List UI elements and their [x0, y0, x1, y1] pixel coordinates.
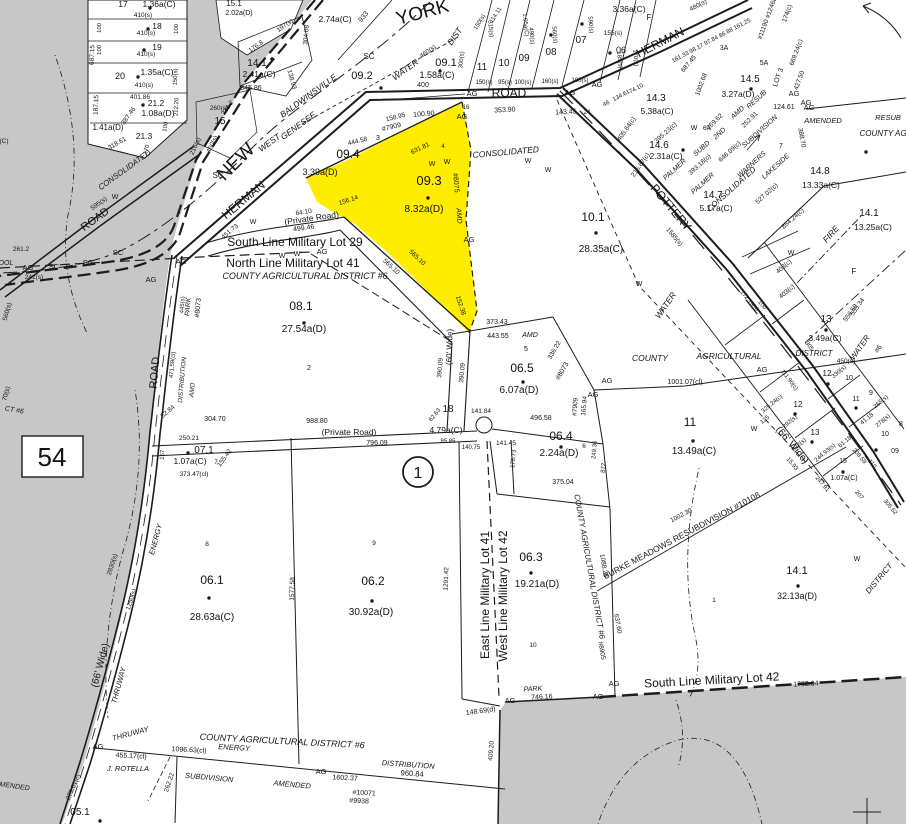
map-label: 250.21	[179, 435, 199, 442]
map-label: AG	[317, 247, 328, 256]
map-label: 7	[214, 459, 218, 466]
map-label: 401.86	[130, 94, 150, 101]
map-label: THRUWAY	[111, 724, 150, 743]
map-label: COUNTY AGRICULTURAL DISTRICT #6	[222, 271, 387, 281]
map-label: 21.3	[136, 131, 153, 141]
map-label: 141.45	[496, 440, 516, 447]
map-label: #10071	[352, 789, 376, 797]
map-label: 1088.26	[598, 554, 609, 579]
parcel-dot	[379, 86, 382, 89]
map-label: LOT 3	[772, 67, 785, 88]
map-label: SC	[212, 171, 223, 180]
map-label: 178.73	[510, 449, 518, 468]
map-label: ENERGY	[147, 522, 164, 556]
map-label: 260(s)	[210, 105, 228, 112]
map-label: DISTRICT	[864, 561, 895, 596]
map-label: 134.61	[612, 89, 632, 103]
map-label: J. ROTELLA	[106, 764, 149, 773]
adjacent-sheet-box: 54	[22, 436, 83, 477]
map-label: PARK	[523, 686, 542, 694]
map-label: 1.08a(D)	[141, 108, 174, 118]
map-label: (Private Road)	[322, 427, 377, 437]
map-label: 09.4	[336, 147, 360, 161]
map-label: F	[647, 13, 652, 22]
map-label: 8	[899, 421, 903, 428]
map-label: 100	[97, 22, 103, 33]
parcel-dot	[594, 231, 597, 234]
map-label: 148.69(d)	[465, 706, 496, 717]
map-label: 167	[160, 449, 167, 460]
map-label: W	[854, 556, 861, 563]
map-label: W	[545, 167, 552, 174]
map-label: 1.07a(C)	[173, 456, 206, 466]
map-label: #8905	[596, 641, 606, 660]
map-label: 241(s)	[25, 274, 43, 281]
map-label: 160(s)	[541, 79, 558, 85]
map-label: 443.55	[487, 333, 509, 340]
map-label: 336.22	[547, 340, 563, 361]
map-label: 41.18	[860, 412, 876, 427]
map-label: 19.21a(D)	[515, 579, 559, 590]
map-label: W	[751, 426, 758, 433]
map-label: 252.91	[740, 110, 759, 129]
map-canvas: 1 54 09.38.32a(D)09.43.39a(D)09.209.11.5…	[0, 0, 906, 824]
map-label: 13	[811, 428, 820, 437]
map-label: 4.79a(C)	[429, 425, 462, 435]
map-label: 1096.63(cl)	[171, 746, 206, 755]
map-label: AG	[93, 742, 104, 751]
map-label: 3.49a(C)	[808, 333, 841, 343]
map-label: 390.09	[458, 362, 467, 383]
map-label: 174(c)	[781, 4, 794, 24]
map-label: 06.1	[200, 573, 224, 587]
map-label: W	[250, 219, 257, 226]
map-label: 527.02(c)	[754, 182, 779, 206]
map-label: 14.1	[859, 208, 879, 219]
map-label: W	[279, 253, 286, 260]
map-label: 07.1	[194, 445, 214, 456]
map-label: 6A	[703, 125, 712, 132]
map-label: 872	[601, 462, 608, 473]
map-label: 746.16	[531, 693, 553, 701]
map-label: 32.13a(D)	[777, 591, 817, 601]
map-label: North Line Military Lot 41	[226, 256, 360, 270]
map-label: 06.3	[519, 550, 543, 564]
map-label: 10	[845, 375, 853, 382]
map-label: FIRE	[821, 223, 842, 244]
map-label: W	[294, 251, 301, 258]
map-label: West Line Military Lot 42	[496, 530, 510, 661]
map-label: 315(s)	[486, 20, 493, 37]
map-label: 400	[417, 82, 429, 89]
map-label: 9	[372, 540, 376, 547]
map-label: COUNTY AG	[859, 129, 906, 138]
map-label: AMD	[454, 207, 462, 224]
map-label: 111.90(c)	[779, 369, 799, 392]
map-label: 427.50	[793, 70, 807, 91]
map-label: SC	[83, 258, 94, 267]
map-label: ROAD	[492, 86, 527, 100]
map-label: 687.15	[89, 45, 97, 65]
map-label: AG	[23, 263, 34, 272]
map-label: 12	[823, 369, 832, 378]
map-label: 933	[357, 10, 370, 24]
map-label: 06.2	[361, 574, 385, 588]
map-label: 410(s)	[135, 82, 153, 89]
map-label: 496.58	[530, 415, 552, 422]
map-label: 409.20	[487, 740, 496, 761]
map-label: AG	[588, 390, 599, 399]
map-label: AG	[176, 257, 187, 266]
map-label: 13.49a(C)	[672, 446, 716, 457]
map-label: 11	[477, 62, 488, 73]
map-label: #9938	[349, 797, 369, 805]
map-label: 265(s)	[873, 394, 890, 410]
map-label: 1602.37	[332, 774, 358, 782]
parcel-dot	[691, 439, 694, 442]
map-label: 14.5	[740, 74, 760, 85]
map-label: 2.74a(C)	[318, 14, 351, 24]
map-label: AG	[789, 89, 800, 98]
map-label: 11	[852, 396, 859, 403]
parcel-dot	[270, 57, 273, 60]
parcel-dot	[796, 584, 799, 587]
road-junction-circle	[476, 417, 492, 433]
map-label: 52.84	[160, 404, 177, 420]
map-label: 06.4	[549, 429, 573, 443]
map-label: 410(s)	[137, 51, 155, 58]
map-label: 140.75	[462, 445, 481, 451]
map-label: 15.1	[226, 0, 242, 8]
map-label: 150(s)	[473, 14, 487, 32]
map-label: 2.24a(D)	[540, 448, 579, 459]
map-label: 6.07a(D)	[500, 385, 539, 396]
map-label: 18	[442, 404, 454, 415]
map-label: 1002.68	[694, 72, 709, 97]
parcel-dot	[864, 150, 867, 153]
parcel-dot	[207, 596, 210, 599]
map-label: 1002.30	[669, 507, 693, 524]
map-label: ENERGY	[218, 742, 251, 753]
map-label: 13	[820, 314, 832, 325]
map-label: PALMER	[662, 158, 688, 182]
map-label: AG	[801, 98, 812, 107]
map-label: 560(s)	[550, 26, 557, 43]
map-label: 669.24(c)	[789, 38, 805, 66]
map-label: AG	[457, 112, 468, 121]
map-label: AG	[602, 376, 613, 385]
map-label: 373.47(cl)	[180, 471, 209, 478]
map-label: 345.86	[240, 85, 262, 92]
map-label: AMENDED	[272, 778, 312, 790]
map-label: 6	[582, 443, 586, 450]
map-label: AGRICULTURAL	[695, 351, 761, 361]
parcel-dot	[841, 470, 844, 473]
map-label: AMENDED	[803, 116, 842, 125]
adjacent-sheet-number: 54	[38, 442, 67, 472]
map-label: 24	[584, 110, 591, 116]
map-label: 3A	[720, 45, 729, 52]
map-label: 8	[205, 541, 209, 548]
map-label: 28.63a(C)	[190, 612, 234, 623]
map-label: 150(s)	[475, 80, 492, 86]
sheet-detail-circle: 1	[403, 457, 433, 487]
map-label: DISTRIBUTION	[177, 356, 188, 403]
map-label: 15	[214, 116, 226, 127]
map-label: 2ND	[712, 127, 728, 142]
map-label: 796.09	[366, 440, 388, 447]
map-label: 14.3	[646, 93, 666, 104]
map-label: 646.09(c)	[717, 140, 742, 164]
map-label: AG	[757, 365, 768, 374]
map-label: 960.84	[400, 768, 424, 779]
map-label: DIST	[445, 25, 465, 47]
map-label: 1702.04	[793, 680, 819, 688]
parcel-dot	[874, 448, 877, 451]
map-label: 85.85	[440, 439, 456, 445]
map-label: W	[788, 250, 795, 257]
map-label: 07	[575, 35, 587, 46]
map-label: 410(s)	[137, 30, 155, 37]
map-label: W	[429, 161, 436, 168]
map-label: 450(s)	[837, 358, 855, 365]
map-label: SC	[363, 52, 374, 61]
map-label: 1291.42	[443, 567, 451, 591]
map-label: 08.1	[289, 299, 313, 313]
map-label: 300(s)	[458, 51, 465, 68]
map-label: DISTRICT	[796, 349, 834, 358]
map-label: 21.2	[148, 98, 165, 108]
map-label: 1250(s)	[125, 588, 138, 611]
map-label: W	[444, 159, 451, 166]
map-label: 854.24(c)	[780, 207, 805, 231]
map-label: 637.60	[612, 613, 622, 634]
map-label: 3.36a(C)	[612, 4, 645, 14]
map-label: 110	[866, 459, 877, 471]
map-label: 455.17(cl)	[115, 752, 146, 761]
map-label: 292(s)	[782, 414, 799, 430]
map-label: YORK	[394, 0, 452, 30]
map-label: 13.33a(C)	[802, 180, 840, 190]
map-label: South Line Military Lot 29	[227, 235, 363, 249]
map-label: 212.20	[174, 97, 181, 116]
parcel-dot	[824, 328, 827, 331]
map-label: 1.58a(C)	[419, 70, 454, 80]
map-label: #11190 #12468	[757, 0, 779, 40]
map-label: COUNTY	[632, 353, 669, 363]
map-label: #7909	[381, 122, 402, 134]
map-label: 143.45	[555, 108, 577, 116]
map-label: 9	[869, 390, 873, 397]
map-label: BURKE MEADOWS RESUBDIVISION #10108	[601, 489, 762, 581]
map-label: 262.22	[163, 772, 176, 793]
map-label: 05.1	[70, 807, 90, 818]
parcel-dot	[854, 406, 857, 409]
map-label: 3.27a(D)	[721, 89, 754, 99]
map-label: 304.70	[204, 416, 226, 423]
map-label: AG	[467, 89, 478, 98]
map-label: 10	[529, 642, 537, 649]
map-label: #8073	[555, 361, 571, 381]
map-label: 1.36a(C)	[142, 0, 175, 9]
map-label: W	[525, 158, 532, 165]
map-label: 09	[518, 53, 530, 64]
map-label: 09	[891, 448, 899, 455]
map-label: AG	[565, 88, 576, 97]
map-label: 8.32a(D)	[405, 204, 444, 215]
map-label: 46	[602, 100, 611, 109]
map-label: 5A	[760, 60, 769, 67]
parcel-dot	[370, 599, 373, 602]
map-label: 155(s)	[604, 30, 622, 37]
map-label: 100.90	[413, 110, 435, 118]
parcel-dot	[521, 380, 524, 383]
map-label: 410(s)	[134, 12, 152, 19]
map-label: 09.3	[416, 173, 441, 188]
map-label: 10.1	[581, 210, 605, 224]
map-label: #6	[874, 344, 884, 354]
map-label: 100	[97, 44, 103, 55]
map-label: 3	[376, 135, 380, 142]
map-label: 150(s)	[173, 68, 180, 85]
map-label: 74.10	[628, 83, 645, 96]
map-label: AG	[316, 767, 327, 776]
tax-parcel-map: 1 54 09.38.32a(D)09.43.39a(D)09.209.11.5…	[0, 0, 906, 824]
map-label: SC	[113, 248, 124, 257]
map-label: AG	[593, 692, 604, 701]
map-label: SUBDIVISION	[185, 771, 235, 784]
map-label: 590(s)	[586, 16, 593, 33]
map-label: 208.59	[851, 447, 868, 465]
map-label: 187.15	[93, 95, 101, 115]
map-label: F	[852, 267, 857, 276]
map-label: (60' Wide)	[444, 328, 454, 365]
map-label: AMD	[729, 105, 746, 121]
map-label: SC	[49, 262, 60, 271]
map-label: 1.07a(C)	[830, 475, 857, 482]
map-label: 3.39a(D)	[302, 167, 337, 177]
parcel-dot	[136, 75, 139, 78]
map-label: W	[112, 194, 119, 201]
map-label: 444.58	[347, 136, 368, 148]
parcel-dot	[186, 451, 189, 454]
map-label: 988.80	[306, 418, 328, 425]
map-label: W	[691, 125, 698, 132]
map-label: 375.04	[552, 479, 574, 486]
parcel-dot	[810, 440, 813, 443]
map-label: 11	[684, 415, 697, 429]
map-label: 1.35a(C)	[140, 67, 173, 77]
map-label: 405.64(c)	[616, 116, 637, 143]
map-label: 353.90	[494, 106, 516, 114]
map-label: 7	[779, 143, 783, 150]
map-label: 2	[307, 365, 311, 372]
parcel-dot	[826, 382, 829, 385]
map-label: 100(s)	[514, 80, 531, 86]
map-label: AMD	[521, 332, 538, 339]
map-label: 13.25a(C)	[854, 222, 892, 232]
map-label: 480(s)	[689, 0, 709, 13]
map-label: 100	[174, 23, 180, 34]
map-label: 403(c)	[775, 258, 794, 275]
parcel-dot	[426, 196, 429, 199]
parcel-dot	[608, 51, 611, 54]
map-label: 08	[545, 47, 557, 58]
map-label: 390.09	[436, 357, 445, 378]
map-label: 5	[524, 346, 528, 353]
parcel-dot	[98, 819, 101, 822]
map-label: 158.95	[385, 112, 406, 124]
map-label: 2.02a(D)	[225, 10, 252, 17]
map-label: 09.2	[351, 70, 372, 82]
parcel-dot	[529, 571, 532, 574]
map-label: 388.70	[796, 127, 806, 148]
map-label: WATER	[390, 57, 420, 83]
map-label: 373.43	[486, 319, 508, 326]
map-label: 15	[839, 458, 847, 465]
map-label: 14.8	[810, 166, 830, 177]
map-label: 185(s)	[615, 51, 622, 68]
map-label: 1.41a(D)	[92, 123, 123, 132]
map-label: 1001.07(cl)	[667, 379, 702, 386]
map-label: 16	[463, 105, 470, 111]
map-label: 138.93	[285, 69, 297, 90]
map-label: 403(c)	[778, 283, 797, 300]
map-label: 17	[118, 0, 128, 9]
map-label: AMD	[188, 382, 196, 398]
map-label: 2.41a(C)	[242, 69, 275, 79]
map-label: RESUB	[875, 113, 901, 122]
map-label: 20	[115, 71, 125, 81]
map-label: W	[636, 281, 643, 288]
map-label: AG	[505, 696, 516, 705]
map-label: 490(s)	[527, 27, 534, 44]
map-label: 14.1	[786, 565, 807, 577]
map-label: 27.54a(D)	[282, 324, 326, 335]
map-label: 10	[498, 58, 510, 69]
map-label: 244.93(s)	[814, 443, 837, 464]
map-label: (C)	[0, 138, 9, 145]
map-label: AG	[609, 679, 620, 688]
map-label: #8073	[194, 298, 203, 318]
map-label: East Line Military Lot 41	[478, 531, 492, 659]
map-label: 14.1	[247, 58, 267, 69]
map-label: OOL	[0, 260, 13, 267]
map-label: 28.35a(C)	[579, 244, 623, 255]
map-label: POTTERY	[648, 181, 695, 233]
map-label: 95(s)	[498, 80, 512, 86]
map-label: 09.1	[435, 57, 456, 69]
map-label: AG	[592, 80, 603, 89]
parcel-dot	[580, 22, 583, 25]
map-label: 62.63	[428, 407, 443, 423]
map-label: 304.08	[302, 24, 311, 45]
map-label: 278(s)	[875, 413, 892, 429]
map-label: 249.36	[591, 440, 599, 459]
map-label: 124.61	[773, 104, 795, 111]
map-label: 207	[853, 490, 864, 502]
map-label: 1	[712, 597, 716, 604]
map-label: 1577.58	[289, 577, 297, 601]
map-label: 471.59(cl)	[169, 351, 177, 378]
map-label: 2.31a(C)	[649, 151, 682, 161]
map-label: 155.42	[216, 448, 233, 469]
map-label: AG	[464, 235, 475, 244]
map-label: 305.62	[882, 498, 899, 516]
map-label: 12	[794, 400, 803, 409]
map-label: 06.5	[510, 361, 534, 375]
detail-circle-number: 1	[414, 465, 423, 482]
